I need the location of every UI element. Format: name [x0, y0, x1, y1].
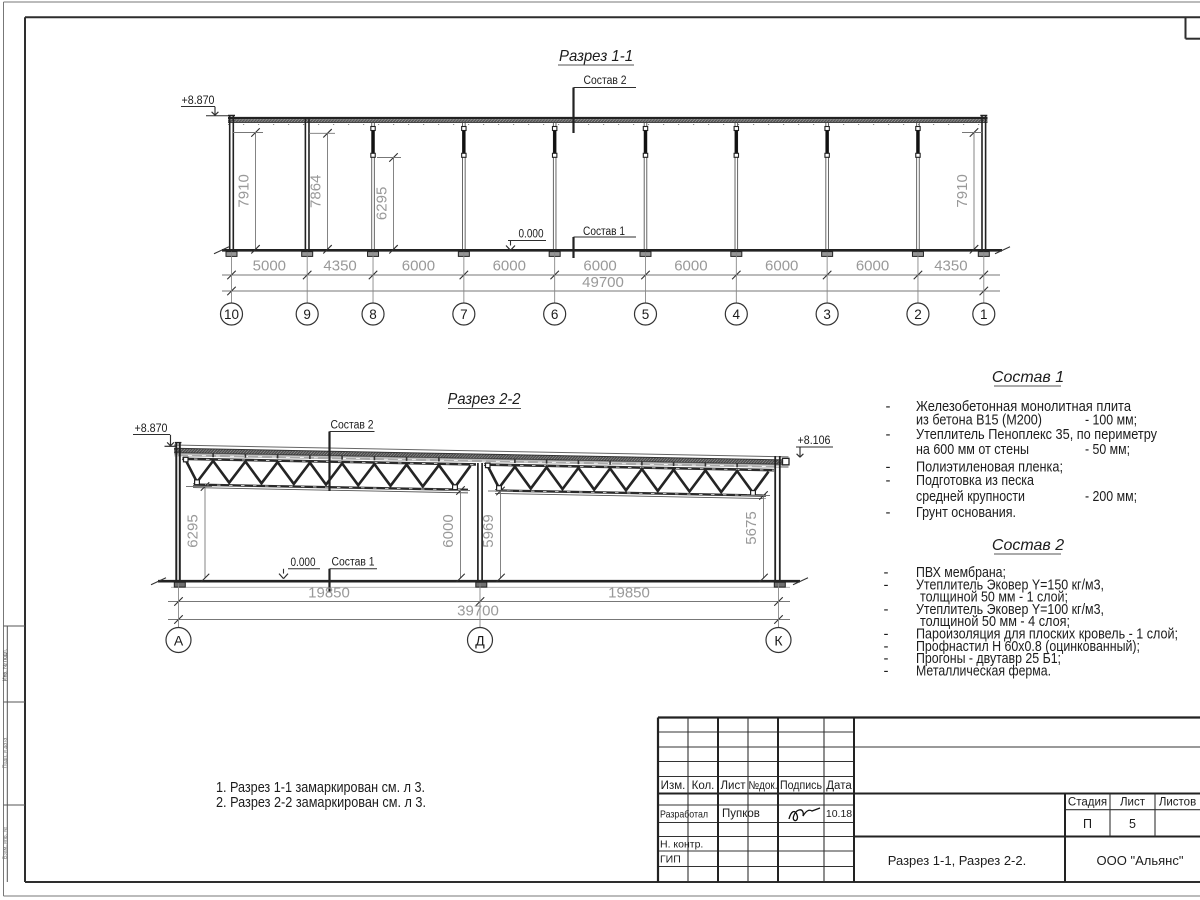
svg-text:Листов: Листов: [1159, 797, 1196, 809]
svg-text:Пупков: Пупков: [722, 808, 760, 820]
svg-text:Изм.: Изм.: [661, 780, 686, 792]
svg-text:6295: 6295: [374, 187, 391, 220]
svg-text:5675: 5675: [743, 511, 760, 544]
svg-text:6000: 6000: [440, 514, 457, 547]
svg-text:А: А: [174, 632, 184, 648]
svg-text:-: -: [886, 426, 891, 443]
svg-text:К: К: [774, 632, 783, 648]
svg-text:Н. контр.: Н. контр.: [660, 839, 703, 851]
svg-text:Состав 2: Состав 2: [331, 420, 374, 432]
svg-text:-: -: [886, 472, 891, 489]
svg-text:Состав 2: Состав 2: [584, 75, 627, 87]
svg-text:39700: 39700: [457, 603, 499, 620]
svg-text:ООО "Альянс": ООО "Альянс": [1097, 853, 1184, 868]
svg-text:7910: 7910: [236, 174, 253, 207]
svg-text:Состав 2: Состав 2: [992, 537, 1064, 554]
svg-text:7864: 7864: [308, 175, 325, 208]
svg-text:Металлическая ферма.: Металлическая ферма.: [916, 662, 1051, 679]
svg-text:5: 5: [642, 307, 650, 322]
svg-text:-: -: [884, 601, 889, 618]
svg-text:- 50 мм;: - 50 мм;: [1085, 441, 1130, 458]
svg-text:на 600 мм от стены: на 600 мм от стены: [916, 441, 1029, 458]
svg-text:9: 9: [303, 307, 311, 322]
svg-text:2: 2: [914, 307, 922, 322]
svg-text:-: -: [884, 576, 889, 593]
svg-text:+8.870: +8.870: [182, 95, 215, 107]
svg-text:Состав 1: Состав 1: [332, 557, 375, 569]
svg-text:5: 5: [1129, 817, 1136, 831]
svg-text:2. Разрез 2-2 замаркирован см.: 2. Разрез 2-2 замаркирован см. л 3.: [216, 795, 426, 811]
svg-text:4350: 4350: [934, 258, 967, 275]
svg-text:3: 3: [823, 307, 831, 322]
svg-text:0.000: 0.000: [291, 557, 316, 569]
svg-text:Подготовка из песка: Подготовка из песка: [916, 472, 1035, 489]
svg-text:5000: 5000: [253, 258, 286, 275]
svg-text:П: П: [1083, 817, 1092, 831]
svg-text:5969: 5969: [480, 514, 497, 547]
svg-text:Разрез 1-1, Разрез 2-2.: Разрез 1-1, Разрез 2-2.: [888, 853, 1026, 868]
svg-text:7910: 7910: [954, 174, 971, 207]
svg-text:№док.: №док.: [749, 780, 778, 792]
svg-text:7: 7: [460, 307, 468, 322]
svg-text:Взам. инв. №: Взам. инв. №: [3, 826, 9, 859]
svg-text:4350: 4350: [323, 258, 356, 275]
svg-text:Подп. и дата: Подп. и дата: [3, 738, 9, 769]
svg-text:Разрез 2-2: Разрез 2-2: [448, 391, 521, 408]
svg-text:6000: 6000: [493, 258, 526, 275]
svg-text:Грунт основания.: Грунт основания.: [916, 504, 1016, 521]
svg-text:6000: 6000: [402, 258, 435, 275]
svg-text:-: -: [886, 504, 891, 521]
svg-text:6000: 6000: [583, 258, 616, 275]
svg-text:Инв. № подл.: Инв. № подл.: [3, 649, 9, 681]
svg-text:Состав 1: Состав 1: [583, 226, 625, 238]
svg-text:19850: 19850: [608, 585, 650, 602]
svg-text:10: 10: [224, 307, 239, 322]
svg-text:Д: Д: [475, 632, 485, 648]
svg-text:19850: 19850: [308, 585, 350, 602]
svg-text:1. Разрез 1-1 замаркирован см.: 1. Разрез 1-1 замаркирован см. л 3.: [216, 780, 425, 796]
svg-text:Разработал: Разработал: [660, 809, 708, 821]
svg-text:Дата: Дата: [826, 780, 852, 792]
svg-text:Кол.: Кол.: [692, 780, 715, 792]
svg-text:Подпись: Подпись: [780, 780, 822, 792]
svg-text:Разрез 1-1: Разрез 1-1: [559, 48, 633, 65]
svg-text:ГИП: ГИП: [660, 854, 681, 866]
svg-text:+8.870: +8.870: [135, 423, 168, 435]
svg-text:10.18: 10.18: [826, 808, 852, 820]
svg-text:-: -: [884, 662, 889, 679]
svg-text:Состав 1: Состав 1: [992, 369, 1064, 386]
svg-text:49700: 49700: [582, 274, 624, 291]
svg-text:- 200 мм;: - 200 мм;: [1085, 488, 1137, 505]
svg-text:средней крупности: средней крупности: [916, 488, 1025, 505]
svg-text:6: 6: [551, 307, 559, 322]
svg-text:+8.106: +8.106: [798, 435, 831, 447]
svg-text:4: 4: [733, 307, 741, 322]
svg-text:-: -: [886, 398, 891, 415]
svg-text:6295: 6295: [185, 514, 202, 547]
svg-text:6000: 6000: [856, 258, 889, 275]
svg-text:8: 8: [369, 307, 377, 322]
svg-text:Лист: Лист: [1120, 797, 1146, 809]
svg-text:1: 1: [980, 307, 988, 322]
svg-text:6000: 6000: [765, 258, 798, 275]
svg-text:0.000: 0.000: [519, 229, 544, 241]
svg-text:Лист: Лист: [721, 780, 747, 792]
svg-text:6000: 6000: [674, 258, 707, 275]
svg-text:Стадия: Стадия: [1068, 797, 1107, 809]
